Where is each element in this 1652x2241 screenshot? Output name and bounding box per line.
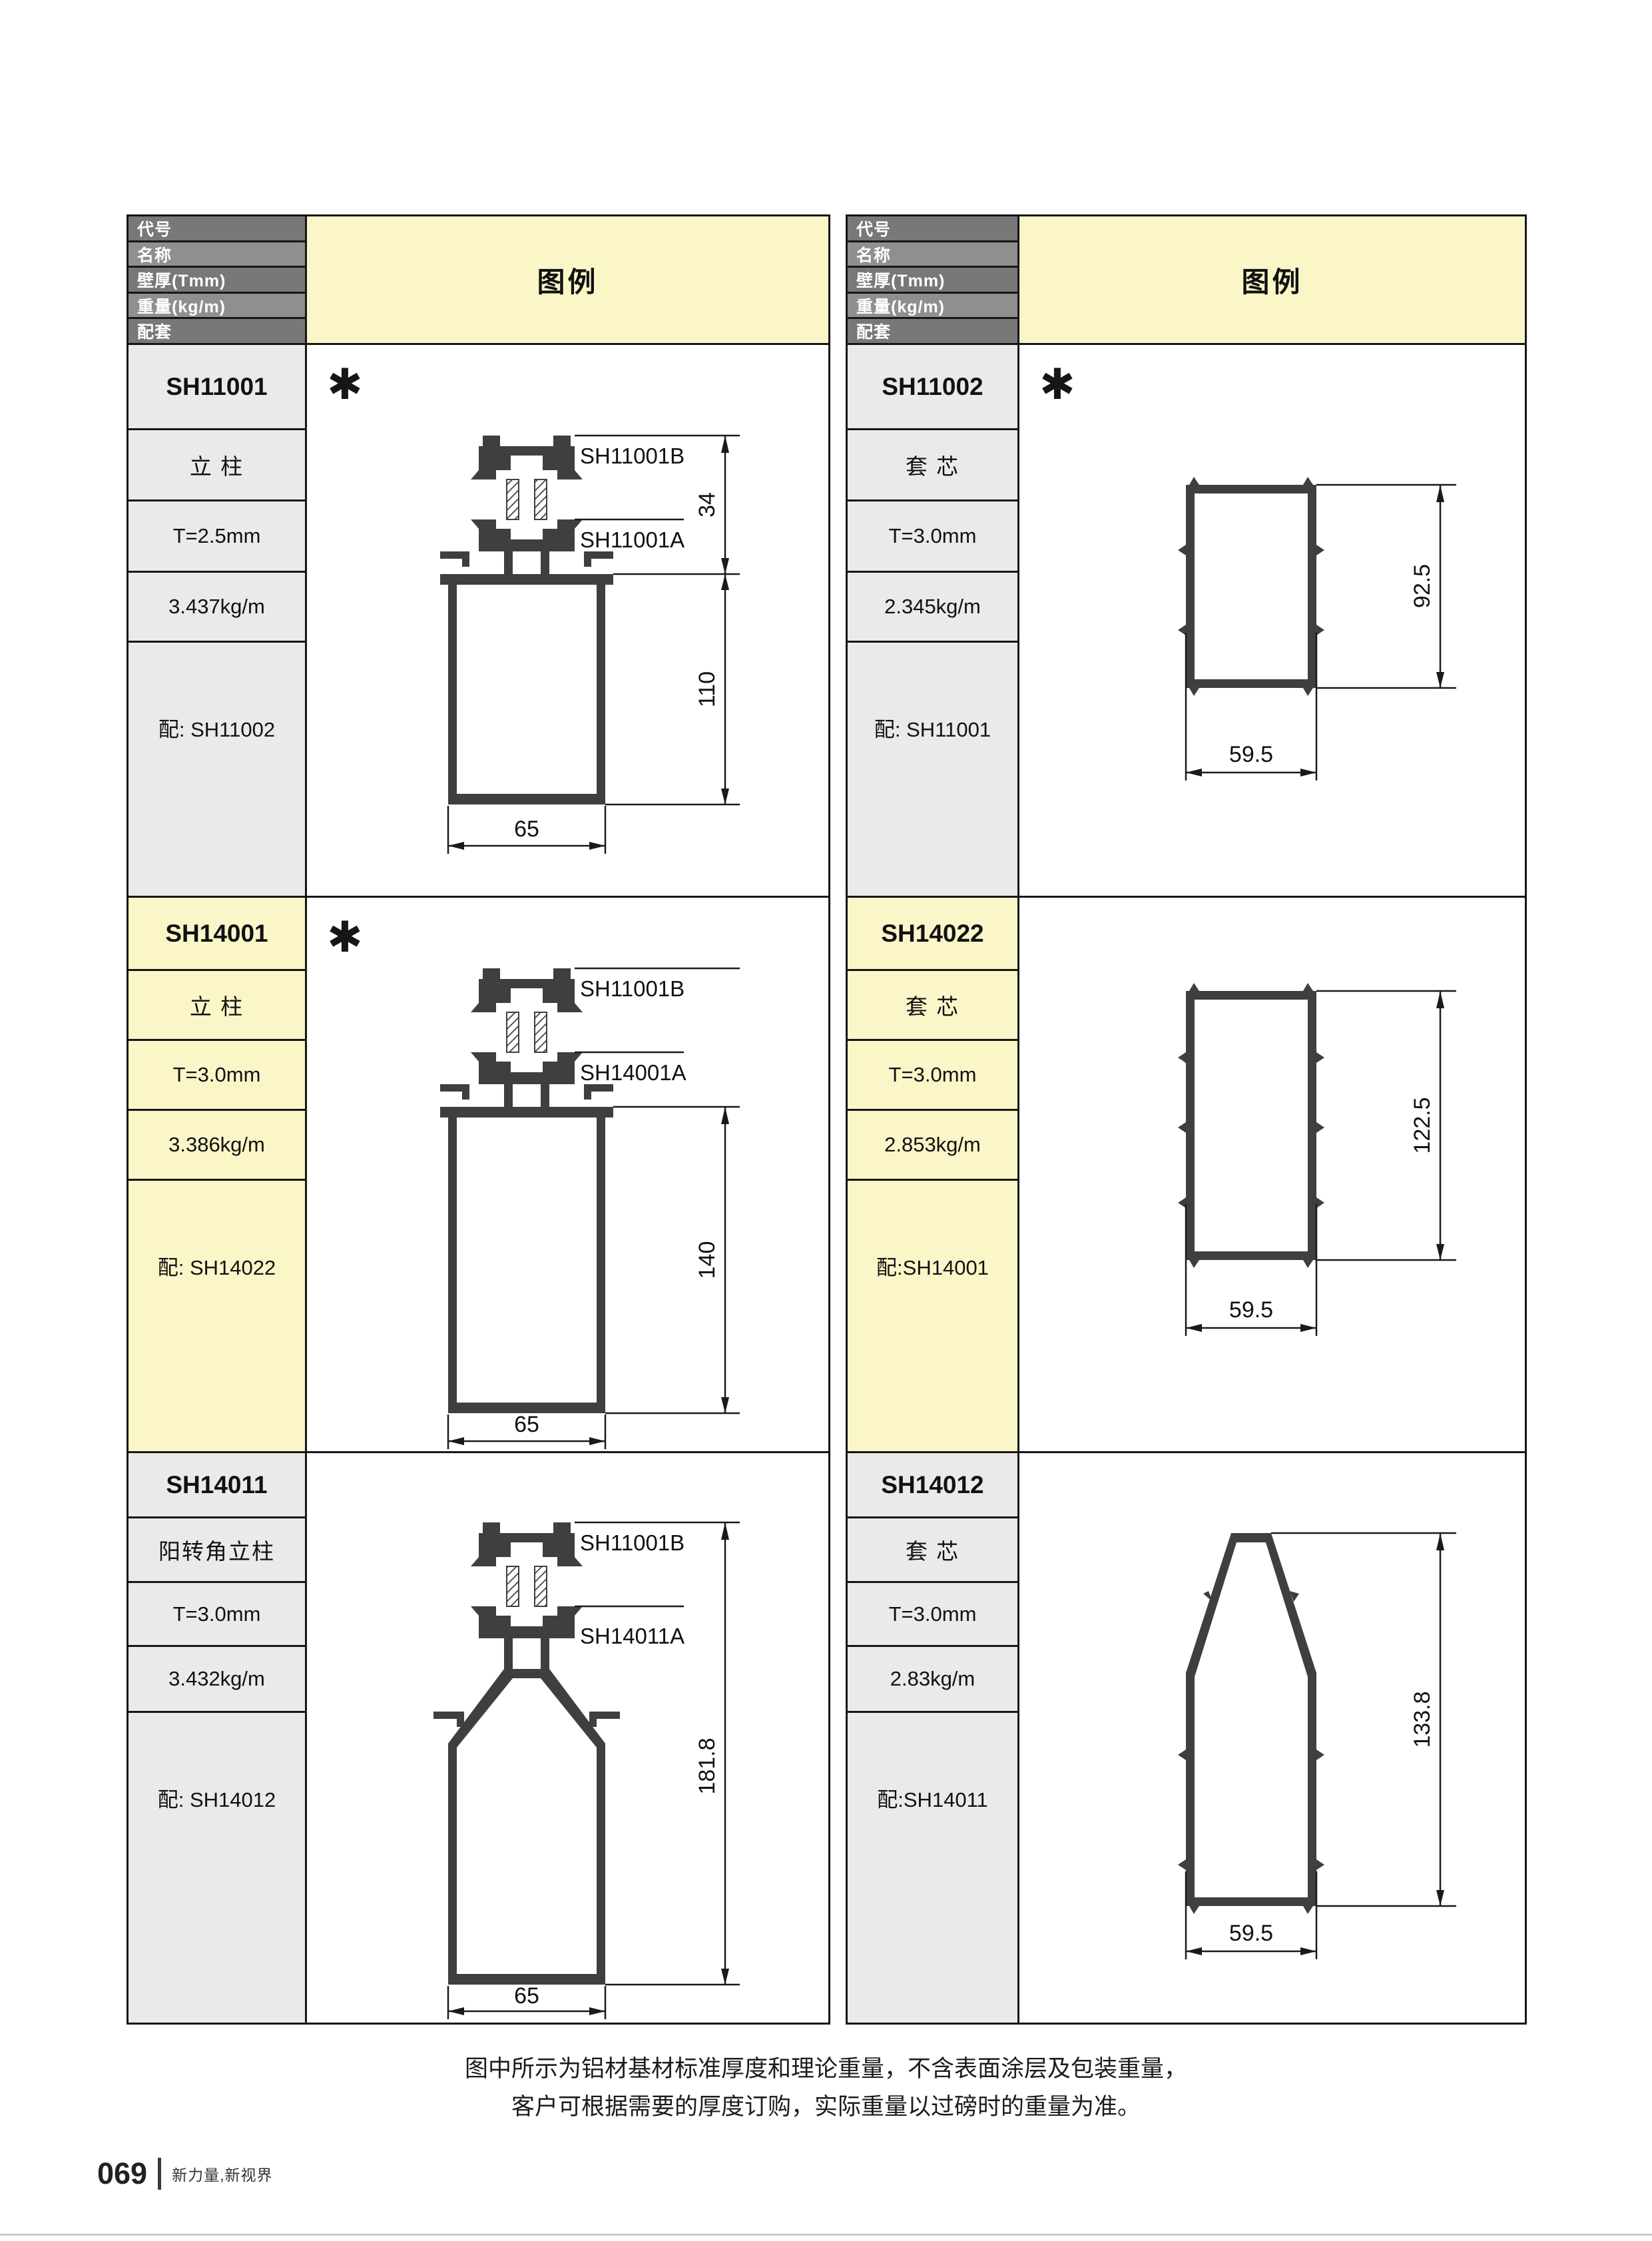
header-cell-weight: 重量(kg/m) (848, 294, 1019, 319)
row-thickness: T=3.0mm (129, 1041, 307, 1111)
name-text: 立 柱 (190, 449, 244, 481)
header-label: 配套 (856, 319, 891, 343)
row-pair: 配: SH11002 (129, 643, 307, 898)
pair-text: 配: SH11001 (874, 713, 991, 743)
connector-top-clip (471, 968, 583, 1012)
dim-height: 181.8 (694, 1738, 720, 1794)
row-thickness: T=2.5mm (129, 501, 307, 573)
profile-table-left: 代号 名称 壁厚(Tmm) 重量(kg/m) 配套 图例 SH11001 立 柱… (127, 214, 830, 2025)
legend-header: 图例 (307, 216, 828, 345)
part-label-top: SH11001B (580, 444, 685, 468)
name-text: 套 芯 (906, 449, 960, 481)
header-cell-name: 名称 (129, 242, 307, 268)
header-cell-weight: 重量(kg/m) (129, 294, 307, 319)
row-name: 立 柱 (129, 971, 307, 1041)
page-footer: 069 新力量,新视界 (97, 2156, 272, 2191)
row-code: SH14011 (129, 1453, 307, 1518)
dim-width: 65 (514, 1412, 539, 1437)
thickness-text: T=3.0mm (173, 1063, 261, 1087)
code-text: SH14012 (881, 1471, 983, 1499)
part-label-bottom: SH14011A (580, 1624, 685, 1648)
dim-width: 65 (514, 816, 539, 842)
header-label: 壁厚(Tmm) (137, 268, 226, 292)
pair-text: 配:SH14001 (876, 1251, 989, 1281)
header-label: 配套 (137, 319, 172, 343)
dim-width: 65 (514, 1983, 539, 2009)
connector-bottom-clip (471, 1052, 583, 1107)
row-weight: 2.83kg/m (848, 1647, 1019, 1713)
name-text: 套 芯 (906, 1534, 960, 1566)
row-thickness: T=3.0mm (848, 501, 1019, 573)
dim-height: 122.5 (1410, 1097, 1435, 1153)
row-code: SH14001 (129, 898, 307, 971)
row-pair: 配: SH14012 (129, 1713, 307, 2023)
header-cell-thickness: 壁厚(Tmm) (129, 268, 307, 294)
header-label: 重量(kg/m) (137, 294, 226, 318)
row-thickness: T=3.0mm (129, 1583, 307, 1647)
row-name: 套 芯 (848, 971, 1019, 1041)
dim-height: 133.8 (1410, 1691, 1435, 1748)
catalog-page: 代号 名称 壁厚(Tmm) 重量(kg/m) 配套 图例 SH11001 立 柱… (0, 0, 1652, 2241)
row-weight: 2.345kg/m (848, 573, 1019, 643)
diagram-SH11002: ✱ 92.5 (1019, 345, 1525, 898)
row-code: SH14012 (848, 1453, 1019, 1518)
legend-label: 图例 (537, 260, 598, 300)
part-label-bottom: SH14001A (580, 1060, 687, 1085)
legend-header: 图例 (1019, 216, 1525, 345)
part-label-top: SH11001B (580, 1530, 685, 1555)
diagram-SH11001: ✱ (307, 345, 828, 898)
profile-drawing-SH11001: SH11001B SH11001A 34 110 65 (307, 345, 828, 896)
header-label: 代号 (856, 216, 891, 240)
code-text: SH11001 (166, 373, 267, 401)
row-pair: 配:SH14011 (848, 1713, 1019, 2023)
header-cell-name: 名称 (848, 242, 1019, 268)
dim-width: 59.5 (1229, 1297, 1273, 1323)
pair-text: 配: SH14012 (158, 1783, 276, 1813)
row-name: 套 芯 (848, 1518, 1019, 1583)
row-name: 立 柱 (129, 430, 307, 501)
part-label-top: SH11001B (580, 976, 685, 1001)
footnote-line-1: 图中所示为铝材基材标准厚度和理论重量，不含表面涂层及包装重量， (0, 2050, 1652, 2088)
diagram-SH14022: 122.5 59.5 (1019, 898, 1525, 1453)
row-pair: 配: SH14022 (129, 1181, 307, 1453)
header-cell-code: 代号 (129, 216, 307, 242)
code-text: SH11002 (882, 373, 983, 401)
thickness-text: T=3.0mm (173, 1602, 261, 1626)
pair-text: 配:SH14011 (877, 1783, 988, 1813)
connector-top-clip (471, 1522, 583, 1566)
row-pair: 配: SH11001 (848, 643, 1019, 898)
row-name: 套 芯 (848, 430, 1019, 501)
name-text: 立 柱 (190, 989, 244, 1021)
diagram-SH14012: 133.8 59.5 (1019, 1453, 1525, 2023)
pair-text: 配: SH11002 (158, 713, 275, 743)
header-cell-code: 代号 (848, 216, 1019, 242)
profile-hooks (433, 1712, 620, 1727)
row-weight: 3.437kg/m (129, 573, 307, 643)
profile-cavity (457, 585, 597, 794)
page-number: 069 (97, 2156, 147, 2191)
header-cell-pair: 配套 (129, 319, 307, 345)
row-code: SH14022 (848, 898, 1019, 971)
row-code: SH11002 (848, 345, 1019, 430)
name-text: 套 芯 (906, 989, 960, 1021)
code-text: SH14022 (881, 920, 983, 948)
weight-text: 2.83kg/m (890, 1667, 975, 1691)
thickness-text: T=3.0mm (889, 524, 977, 548)
profile-cavity (1195, 1000, 1308, 1251)
thickness-text: T=3.0mm (889, 1063, 977, 1087)
weight-text: 2.345kg/m (884, 595, 981, 619)
connector-top-clip (471, 436, 583, 480)
connector-studs (507, 480, 547, 519)
weight-text: 3.432kg/m (168, 1667, 265, 1691)
footer-slogan: 新力量,新视界 (172, 2162, 272, 2185)
profile-table-right: 代号 名称 壁厚(Tmm) 重量(kg/m) 配套 图例 SH11002 套 芯… (846, 214, 1527, 2025)
profile-drawing-SH11002: 92.5 59.5 (1019, 345, 1525, 896)
dim-height: 92.5 (1410, 564, 1435, 608)
weight-text: 3.386kg/m (168, 1133, 265, 1157)
thickness-text: T=2.5mm (173, 524, 261, 548)
header-label: 重量(kg/m) (856, 294, 945, 318)
profile-drawing-SH14022: 122.5 59.5 (1019, 898, 1525, 1451)
thickness-text: T=3.0mm (889, 1602, 977, 1626)
row-thickness: T=3.0mm (848, 1583, 1019, 1647)
connector-studs (507, 1012, 547, 1052)
profile-drawing-SH14012: 133.8 59.5 (1019, 1453, 1525, 2023)
connector-bottom-clip (471, 519, 583, 574)
weight-text: 2.853kg/m (884, 1133, 981, 1157)
diagram-SH14011: SH11001B SH14011A 181.8 65 (307, 1453, 828, 2023)
code-text: SH14001 (165, 920, 268, 948)
header-label: 壁厚(Tmm) (856, 268, 945, 292)
row-weight: 2.853kg/m (848, 1111, 1019, 1181)
pair-text: 配: SH14022 (158, 1251, 276, 1281)
connector-studs (507, 1566, 547, 1606)
profile-drawing-SH14011: SH11001B SH14011A 181.8 65 (307, 1453, 828, 2023)
header-label: 代号 (137, 216, 172, 240)
footer-divider (158, 2158, 161, 2190)
row-weight: 3.432kg/m (129, 1647, 307, 1713)
row-pair: 配:SH14001 (848, 1181, 1019, 1453)
header-label: 名称 (856, 242, 891, 266)
row-thickness: T=3.0mm (848, 1041, 1019, 1111)
legend-label: 图例 (1241, 260, 1302, 300)
profile-body (448, 1669, 605, 1985)
bottom-rule (0, 2234, 1652, 2236)
dim-height: 110 (694, 671, 720, 707)
part-label-bottom: SH11001A (580, 527, 685, 552)
dim-connector-height: 34 (694, 492, 720, 517)
dim-width: 59.5 (1229, 742, 1273, 767)
profile-drawing-SH14001: SH11001B SH14001A 140 65 (307, 898, 828, 1451)
profile-cavity (1195, 493, 1308, 679)
header-cell-thickness: 壁厚(Tmm) (848, 268, 1019, 294)
diagram-SH14001: ✱ (307, 898, 828, 1453)
row-weight: 3.386kg/m (129, 1111, 307, 1181)
footnote-block: 图中所示为铝材基材标准厚度和理论重量，不含表面涂层及包装重量， 客户可根据需要的… (0, 2050, 1652, 2126)
footnote-line-2: 客户可根据需要的厚度订购，实际重量以过磅时的重量为准。 (0, 2088, 1652, 2126)
profile-body (1186, 1533, 1316, 1906)
code-text: SH14011 (166, 1471, 267, 1499)
profile-cavity (457, 1118, 597, 1403)
dim-width: 59.5 (1229, 1921, 1273, 1946)
header-cell-pair: 配套 (848, 319, 1019, 345)
row-name: 阳转角立柱 (129, 1518, 307, 1583)
dim-height: 140 (694, 1241, 720, 1279)
weight-text: 3.437kg/m (168, 595, 265, 619)
connector-bottom-clip (471, 1606, 583, 1669)
header-label: 名称 (137, 242, 172, 266)
row-code: SH11001 (129, 345, 307, 430)
name-text: 阳转角立柱 (158, 1534, 275, 1566)
